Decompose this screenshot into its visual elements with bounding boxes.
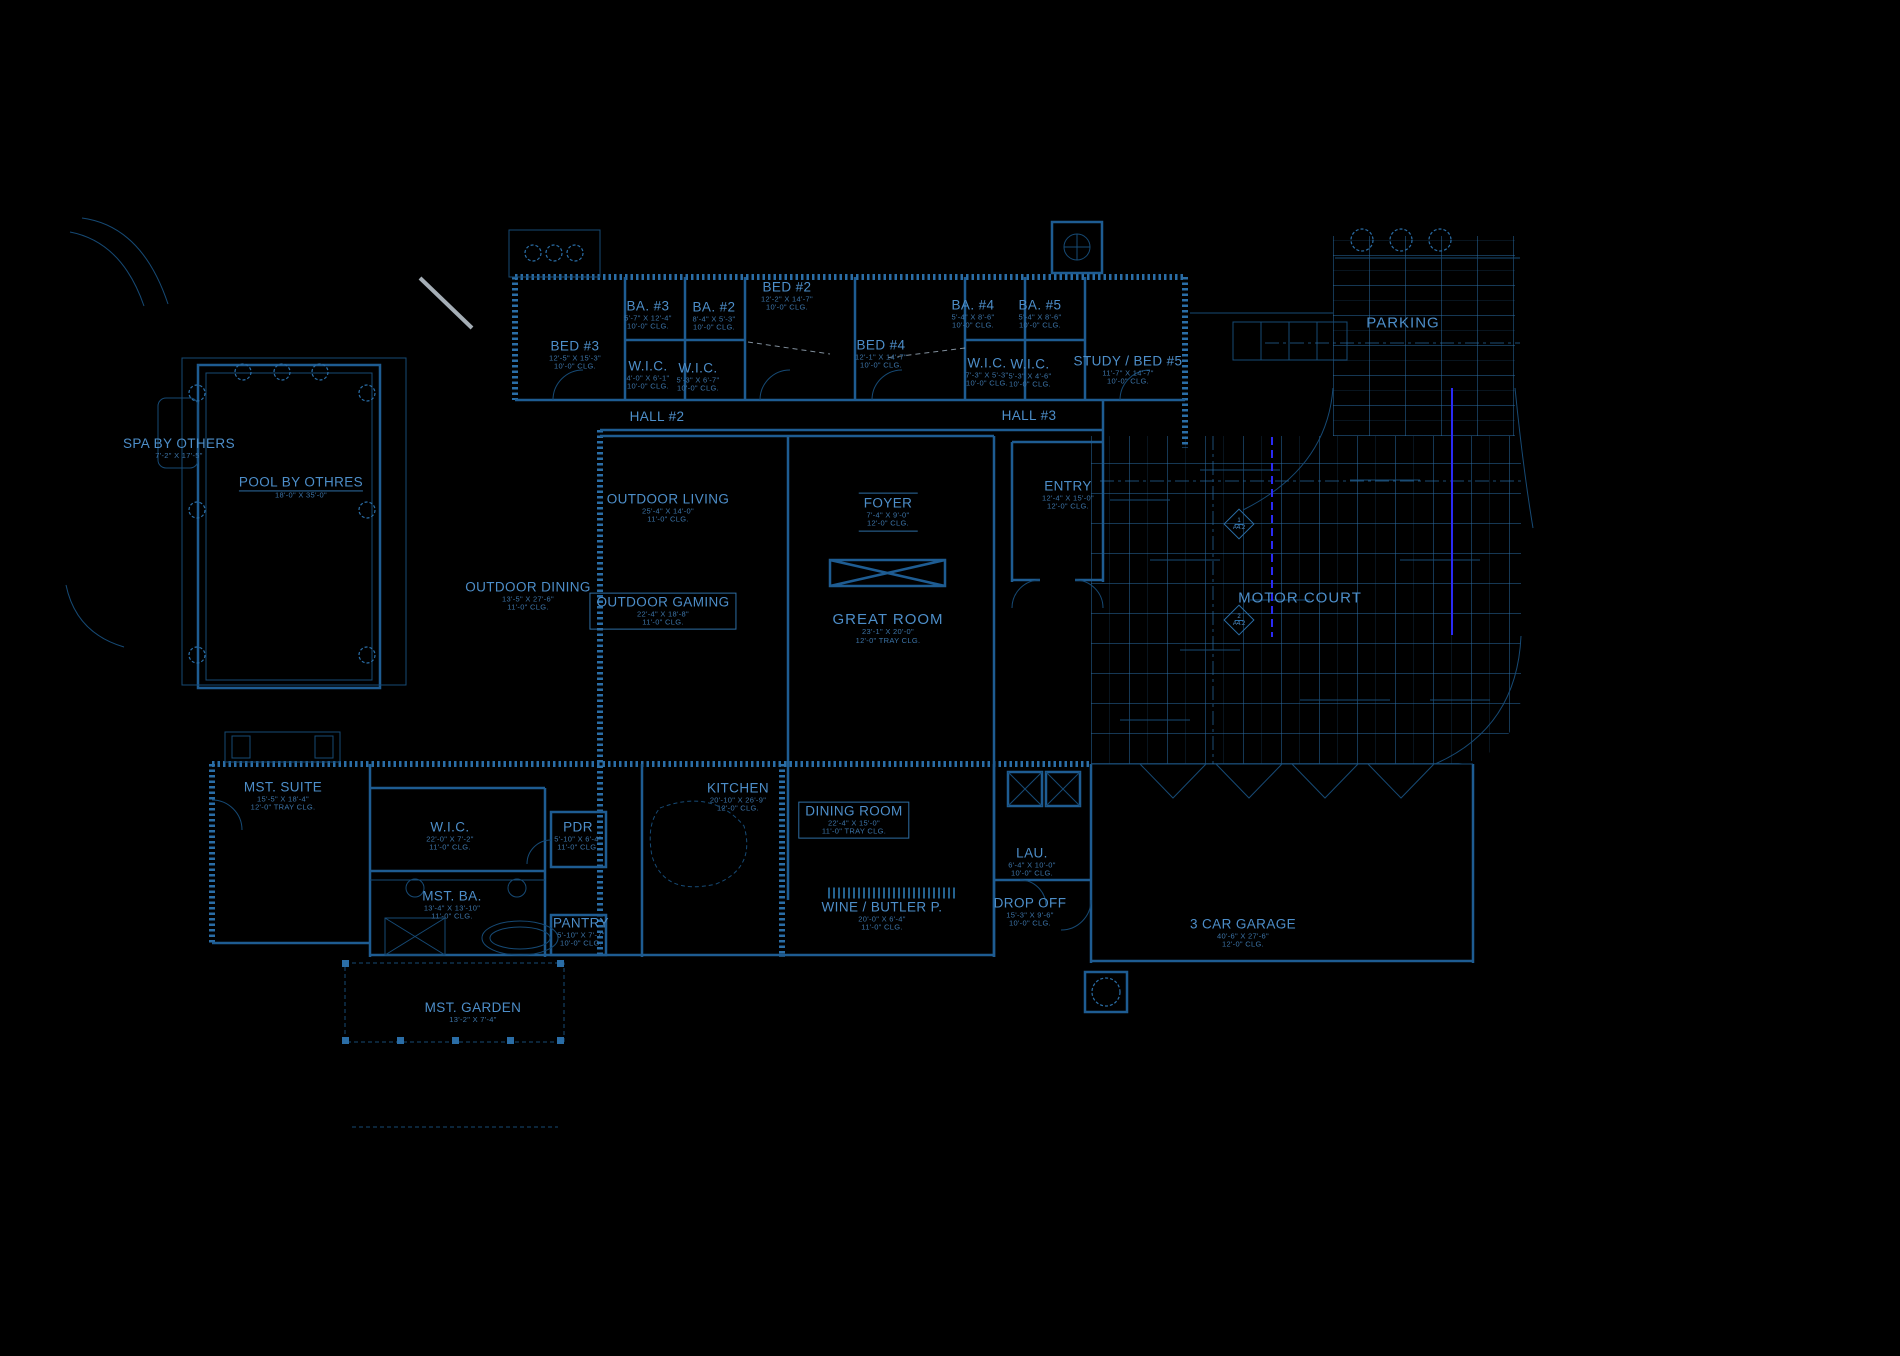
label-motor-court: MOTOR COURT: [1238, 589, 1362, 606]
room-name: HALL #2: [630, 409, 685, 425]
room-clg: 11'-0" TRAY CLG.: [805, 828, 902, 837]
label-mst-garden: MST. GARDEN 13'-2" X 7'-4": [425, 1000, 522, 1024]
porch-box: [509, 230, 600, 277]
room-clg: 10'-0" CLG.: [855, 362, 907, 371]
label-great-room: GREAT ROOM 23'-1" X 20'-0" 12'-0" TRAY C…: [832, 611, 943, 646]
room-name: OUTDOOR DINING: [465, 580, 591, 596]
room-clg: 10'-0" CLG.: [1009, 381, 1052, 390]
room-name: OUTDOOR LIVING: [607, 492, 730, 508]
room-dims: 13'-2" X 7'-4": [425, 1015, 522, 1024]
floor-plan: SPA BY OTHERS 7'-2" X 17'-5" POOL BY OTH…: [0, 0, 1900, 1356]
label-bed3: BED #3 12'-5" X 15'-3" 10'-0" CLG.: [549, 339, 601, 372]
label-bed4: BED #4 12'-1" X 14'-7" 10'-0" CLG.: [855, 338, 907, 371]
room-name: DROP OFF: [994, 896, 1067, 912]
room-name: POOL BY OTHRES: [239, 474, 363, 491]
label-ba4: BA. #4 5'-4" X 8'-6" 10'-0" CLG.: [952, 298, 995, 331]
room-name: 3 CAR GARAGE: [1190, 917, 1296, 933]
parking-pergola: [1190, 258, 1520, 360]
room-name: HALL #3: [1002, 408, 1057, 424]
room-clg: 10'-0" CLG.: [553, 940, 609, 949]
room-name: BA. #4: [952, 298, 995, 314]
room-clg: 11'-0" CLG.: [607, 516, 730, 525]
room-name: W.I.C.: [627, 359, 670, 375]
pool-fitting: [235, 364, 251, 380]
room-clg: 11'-0" CLG.: [554, 844, 601, 853]
room-name: BED #4: [855, 338, 907, 354]
room-clg: 10'-0" CLG.: [952, 322, 995, 331]
tree: [1390, 229, 1412, 251]
room-clg: 11'-0" CLG.: [596, 619, 729, 628]
label-garage: 3 CAR GARAGE 40'-6" X 27'-6" 12'-0" CLG.: [1190, 917, 1296, 950]
pool-fitting: [359, 502, 375, 518]
room-clg: 12'-0" TRAY CLG.: [244, 804, 322, 813]
room-name: BA. #3: [624, 299, 671, 315]
label-hall2: HALL #2: [630, 409, 685, 425]
label-ba3: BA. #3 5'-7" X 12'-4" 10'-0" CLG.: [624, 299, 671, 332]
label-study-bed5: STUDY / BED #5 11'-7" X 14'-7" 10'-0" CL…: [1074, 354, 1183, 387]
room-name: KITCHEN: [707, 781, 769, 797]
elevation-marker-2: 2 A4.2: [1226, 607, 1252, 633]
label-wic-bed2: W.I.C. 5'-3" X 6'-7" 10'-0" CLG.: [677, 361, 720, 394]
label-mst-ba: MST. BA. 13'-4" X 13'-10" 11'-0" CLG.: [422, 889, 481, 922]
room-clg: 10'-0" CLG.: [549, 363, 601, 372]
room-clg: 11'-0" CLG.: [465, 604, 591, 613]
room-clg: 10'-0" CLG.: [627, 383, 670, 392]
room-clg: 10'-0" CLG.: [677, 385, 720, 394]
label-ba5: BA. #5 5'-4" X 8'-6" 10'-0" CLG.: [1019, 298, 1062, 331]
south-wing-exterior-walls: [212, 764, 1091, 957]
marker-sheet: A4.2: [1233, 525, 1245, 531]
room-name: BED #2: [761, 280, 813, 296]
room-name: OUTDOOR GAMING: [596, 595, 729, 611]
room-dims: 7'-2" X 17'-5": [123, 451, 235, 460]
room-name: BA. #5: [1019, 298, 1062, 314]
label-parking: PARKING: [1366, 314, 1439, 331]
room-name: WINE / BUTLER P.: [822, 900, 943, 916]
room-name: ENTRY: [1042, 479, 1094, 495]
tree: [1351, 229, 1373, 251]
room-name: MOTOR COURT: [1238, 589, 1362, 606]
room-name: MST. BA.: [422, 889, 481, 905]
room-name: PARKING: [1366, 314, 1439, 331]
appliance-cross-marks: [1008, 772, 1080, 806]
white-diagonal-mark: [420, 278, 472, 328]
label-ba2: BA. #2 8'-4" X 5'-3" 10'-0" CLG.: [693, 300, 736, 333]
room-clg: 12'-0" CLG.: [1042, 503, 1094, 512]
pool-fitting: [274, 364, 290, 380]
label-kitchen: KITCHEN 20'-10" X 26'-9" 12'-0" CLG.: [707, 781, 769, 814]
porch-planter: [567, 245, 583, 261]
room-name: SPA BY OTHERS: [123, 436, 235, 452]
pool-edge: [198, 365, 380, 688]
room-clg: 11'-0" CLG.: [426, 844, 473, 853]
pool-inner-line: [206, 373, 372, 680]
label-wic-bed3: W.I.C. 4'-0" X 6'-1" 10'-0" CLG.: [627, 359, 670, 392]
label-wic-bed4: W.I.C. 7'-3" X 5'-3" 10'-0" CLG.: [966, 356, 1009, 389]
room-name: LAU.: [1008, 846, 1055, 862]
room-name: PANTRY: [553, 916, 609, 932]
marker-sheet: A4.2: [1233, 621, 1245, 627]
label-hall3: HALL #3: [1002, 408, 1057, 424]
label-laundry: LAU. 6'-4" X 10'-0" 10'-0" CLG.: [1008, 846, 1055, 879]
label-pool: POOL BY OTHRES 18'-0" X 35'-0": [239, 474, 363, 499]
label-spa: SPA BY OTHERS 7'-2" X 17'-5": [123, 436, 235, 460]
label-outdoor-gaming: OUTDOOR GAMING 22'-4" X 18'-8" 11'-0" CL…: [589, 593, 736, 630]
hall-walls: [515, 400, 1185, 430]
pool-fitting: [359, 385, 375, 401]
label-outdoor-dining: OUTDOOR DINING 13'-5" X 27'-6" 11'-0" CL…: [465, 580, 591, 613]
room-clg: 10'-0" CLG.: [1074, 378, 1183, 387]
room-clg: 10'-0" CLG.: [1008, 870, 1055, 879]
room-clg: 12'-0" TRAY CLG.: [832, 637, 943, 646]
room-name: MST. GARDEN: [425, 1000, 522, 1016]
room-name: PDR: [554, 820, 601, 836]
vanity-sink-2: [508, 879, 526, 897]
pool-fitting: [312, 364, 328, 380]
pool-fitting: [359, 647, 375, 663]
marker-number: 1: [1235, 518, 1242, 525]
marker-number: 2: [1235, 614, 1242, 621]
label-bed2: BED #2 12'-2" X 14'-7" 10'-0" CLG.: [761, 280, 813, 313]
porch-planter: [546, 245, 562, 261]
plan-linework: [0, 0, 1900, 1356]
fireplace-media-wall: [830, 560, 945, 586]
exhaust-fan: [1092, 978, 1120, 1006]
label-wic-bed5: W.I.C. 5'-3" X 4'-6" 10'-0" CLG.: [1009, 357, 1052, 390]
label-pdr: PDR 5'-10" X 6'-4" 11'-0" CLG.: [554, 820, 601, 853]
room-name: W.I.C.: [426, 820, 473, 836]
label-outdoor-living: OUTDOOR LIVING 25'-4" X 14'-0" 11'-0" CL…: [607, 492, 730, 525]
room-clg: 12'-0" CLG.: [864, 520, 913, 529]
room-name: BA. #2: [693, 300, 736, 316]
tree: [1429, 229, 1451, 251]
room-name: FOYER: [864, 496, 913, 512]
label-pantry: PANTRY 5'-10" X 7'-7" 10'-0" CLG.: [553, 916, 609, 949]
label-wic-master: W.I.C. 22'-0" X 7'-2" 11'-0" CLG.: [426, 820, 473, 853]
room-clg: 12'-0" CLG.: [1190, 941, 1296, 950]
mst-garden-terrace: [345, 963, 564, 1127]
room-name: BED #3: [549, 339, 601, 355]
label-entry: ENTRY 12'-4" X 15'-0" 12'-0" CLG.: [1042, 479, 1094, 512]
label-drop-off: DROP OFF 15'-3" X 9'-6" 10'-0" CLG.: [994, 896, 1067, 929]
room-clg: 10'-0" CLG.: [624, 323, 671, 332]
room-name: W.I.C.: [1009, 357, 1052, 373]
room-name: W.I.C.: [966, 356, 1009, 372]
room-clg: 10'-0" CLG.: [994, 920, 1067, 929]
garage-door-chevrons: [1140, 764, 1434, 798]
label-foyer: FOYER 7'-4" X 9'-0" 12'-0" CLG.: [859, 493, 918, 532]
label-wine-butler: WINE / BUTLER P. 20'-0" X 6'-4" 11'-0" C…: [822, 900, 943, 933]
room-clg: 12'-0" CLG.: [707, 805, 769, 814]
room-clg: 10'-0" CLG.: [693, 324, 736, 333]
label-dining-room: DINING ROOM 22'-4" X 15'-0" 11'-0" TRAY …: [798, 802, 909, 839]
kitchen-island-outline: [650, 801, 747, 887]
room-dims: 18'-0" X 35'-0": [239, 491, 363, 500]
room-name: W.I.C.: [677, 361, 720, 377]
room-clg: 10'-0" CLG.: [1019, 322, 1062, 331]
label-mst-suite: MST. SUITE 15'-5" X 18'-4" 12'-0" TRAY C…: [244, 780, 322, 813]
room-clg: 11'-0" CLG.: [822, 924, 943, 933]
room-name: MST. SUITE: [244, 780, 322, 796]
room-clg: 11'-0" CLG.: [422, 913, 481, 922]
porch-planter: [525, 245, 541, 261]
room-clg: 10'-0" CLG.: [761, 304, 813, 313]
room-name: DINING ROOM: [805, 804, 902, 820]
centerlines: [1100, 343, 1521, 764]
elevation-marker-1: 1 A4.2: [1226, 511, 1252, 537]
room-clg: 10'-0" CLG.: [966, 380, 1009, 389]
outdoor-daybed: [225, 732, 340, 762]
room-name: STUDY / BED #5: [1074, 354, 1183, 370]
room-name: GREAT ROOM: [832, 611, 943, 628]
